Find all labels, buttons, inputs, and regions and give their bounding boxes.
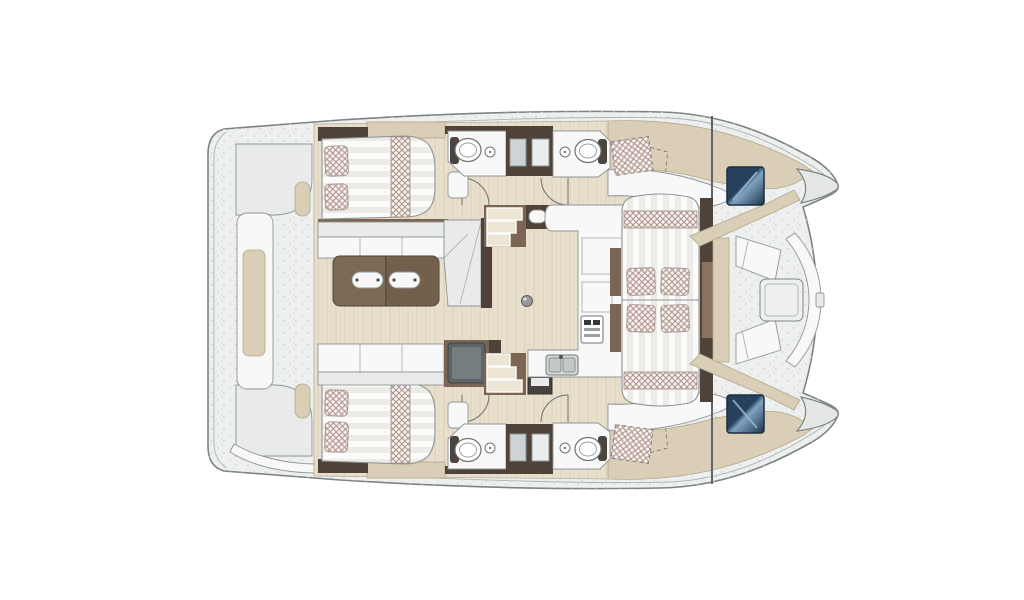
forward-cabin — [610, 194, 729, 406]
handle-dot — [392, 278, 395, 281]
pillow — [324, 146, 348, 177]
deck-locker-bottom — [295, 384, 310, 418]
catamaran-floor-plan — [0, 0, 1024, 600]
bed-runner — [391, 137, 410, 217]
stair-step — [487, 367, 516, 379]
pillow — [325, 184, 349, 211]
bed-runner — [624, 372, 697, 389]
module-inner — [452, 347, 481, 379]
sink-bowl — [563, 358, 575, 372]
shower-door — [532, 434, 549, 461]
bed-runner — [624, 211, 697, 228]
salon-table — [333, 256, 439, 306]
locker-hatch — [611, 425, 653, 464]
bulkhead-trim — [713, 238, 729, 362]
deck-locker-top — [295, 182, 310, 216]
locker-hatch — [611, 137, 653, 176]
drain — [489, 151, 491, 153]
bedside-panel — [610, 248, 621, 296]
stove-control — [584, 328, 600, 331]
burner — [584, 320, 591, 325]
stair-step — [487, 208, 522, 220]
stair-step — [487, 380, 522, 392]
toilet — [575, 140, 601, 163]
cabinet-handle — [529, 210, 546, 223]
aft-console-hatch — [243, 250, 265, 356]
toilet — [455, 439, 481, 462]
sofa-top-back — [318, 222, 444, 237]
stair-step — [487, 354, 510, 366]
sofa-top-seat — [318, 237, 444, 258]
bedside-panel — [610, 304, 621, 352]
stair-step — [487, 221, 516, 233]
shelf — [531, 378, 549, 386]
faucet — [559, 355, 563, 359]
pillow — [627, 268, 656, 296]
cockpit-table — [760, 279, 803, 321]
stove-control — [584, 334, 600, 337]
pillow — [661, 305, 690, 333]
bathrooms-top — [448, 126, 610, 177]
drain — [489, 447, 491, 449]
galley-sink — [546, 355, 578, 375]
forward-door — [702, 262, 713, 338]
toilet — [575, 438, 601, 461]
drain — [564, 151, 566, 153]
bed-runner — [391, 383, 410, 463]
shower-door — [532, 139, 549, 166]
catamaran-floor-plan-page — [0, 0, 1024, 600]
handle-dot — [355, 278, 358, 281]
pillow — [661, 268, 690, 296]
floor-fitting-highlight — [524, 298, 527, 301]
toilet — [455, 139, 481, 162]
handle-dot — [376, 278, 379, 281]
pillow — [325, 390, 349, 417]
stove — [581, 316, 603, 343]
drain — [564, 447, 566, 449]
sofa-bottom-back — [318, 372, 444, 385]
burner — [593, 320, 600, 325]
pillow — [324, 422, 348, 453]
sofa-bottom-seat — [318, 344, 444, 372]
shower-door — [510, 434, 526, 461]
stair-step — [487, 234, 510, 246]
shower-door — [510, 139, 526, 166]
sink-bowl — [549, 358, 561, 372]
salon — [318, 218, 501, 388]
handle-dot — [413, 278, 416, 281]
floor-fitting — [522, 296, 533, 307]
pillow — [627, 305, 656, 333]
bathrooms-bottom — [448, 423, 610, 474]
rim-fitting — [816, 293, 824, 307]
